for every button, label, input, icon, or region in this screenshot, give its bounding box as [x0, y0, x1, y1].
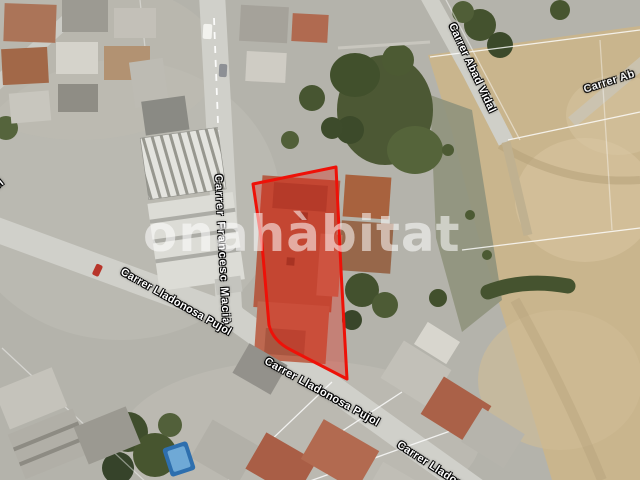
satellite-map-canvas[interactable]: Carrer Francesc Macià Carrer Lladonosa P…	[0, 0, 640, 480]
car-white	[203, 24, 213, 39]
car-gray	[219, 64, 228, 77]
satellite-imagery	[0, 0, 640, 480]
